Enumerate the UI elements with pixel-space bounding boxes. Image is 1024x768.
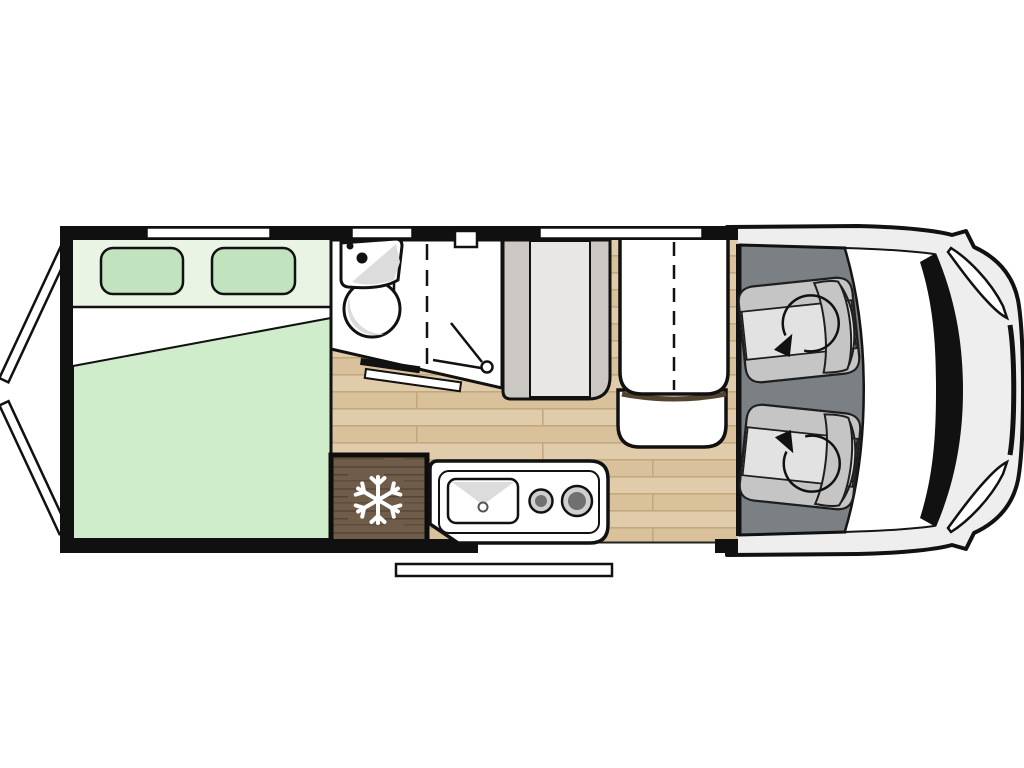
window-bedroom: [147, 228, 270, 238]
kitchen-unit: [430, 461, 608, 543]
round-basin: [344, 281, 400, 337]
wall-bottom-left: [60, 539, 478, 553]
rear-doors-open: [0, 245, 71, 534]
wardrobe-center-panel: [530, 241, 590, 397]
sink-drain-icon: [479, 503, 488, 512]
shower-vent: [455, 231, 477, 247]
wall-rear: [60, 226, 73, 553]
floorplan-canvas: [0, 0, 1024, 768]
wall-bottom-right: [715, 539, 738, 553]
window-bathroom: [352, 228, 412, 238]
pillow-right: [212, 248, 295, 294]
rear-door-top: [0, 245, 71, 382]
refrigerator: [331, 455, 427, 544]
rear-door-bottom: [0, 401, 69, 534]
swivel-seat-top: [737, 276, 860, 383]
rear-bed: [73, 240, 331, 541]
floorplan: [0, 0, 1024, 768]
pillow-left: [101, 248, 183, 294]
faucet-dots-icon: [347, 243, 354, 250]
swivel-seat-bottom: [738, 403, 861, 510]
window-dinette: [540, 228, 702, 238]
entry-step: [396, 564, 612, 576]
